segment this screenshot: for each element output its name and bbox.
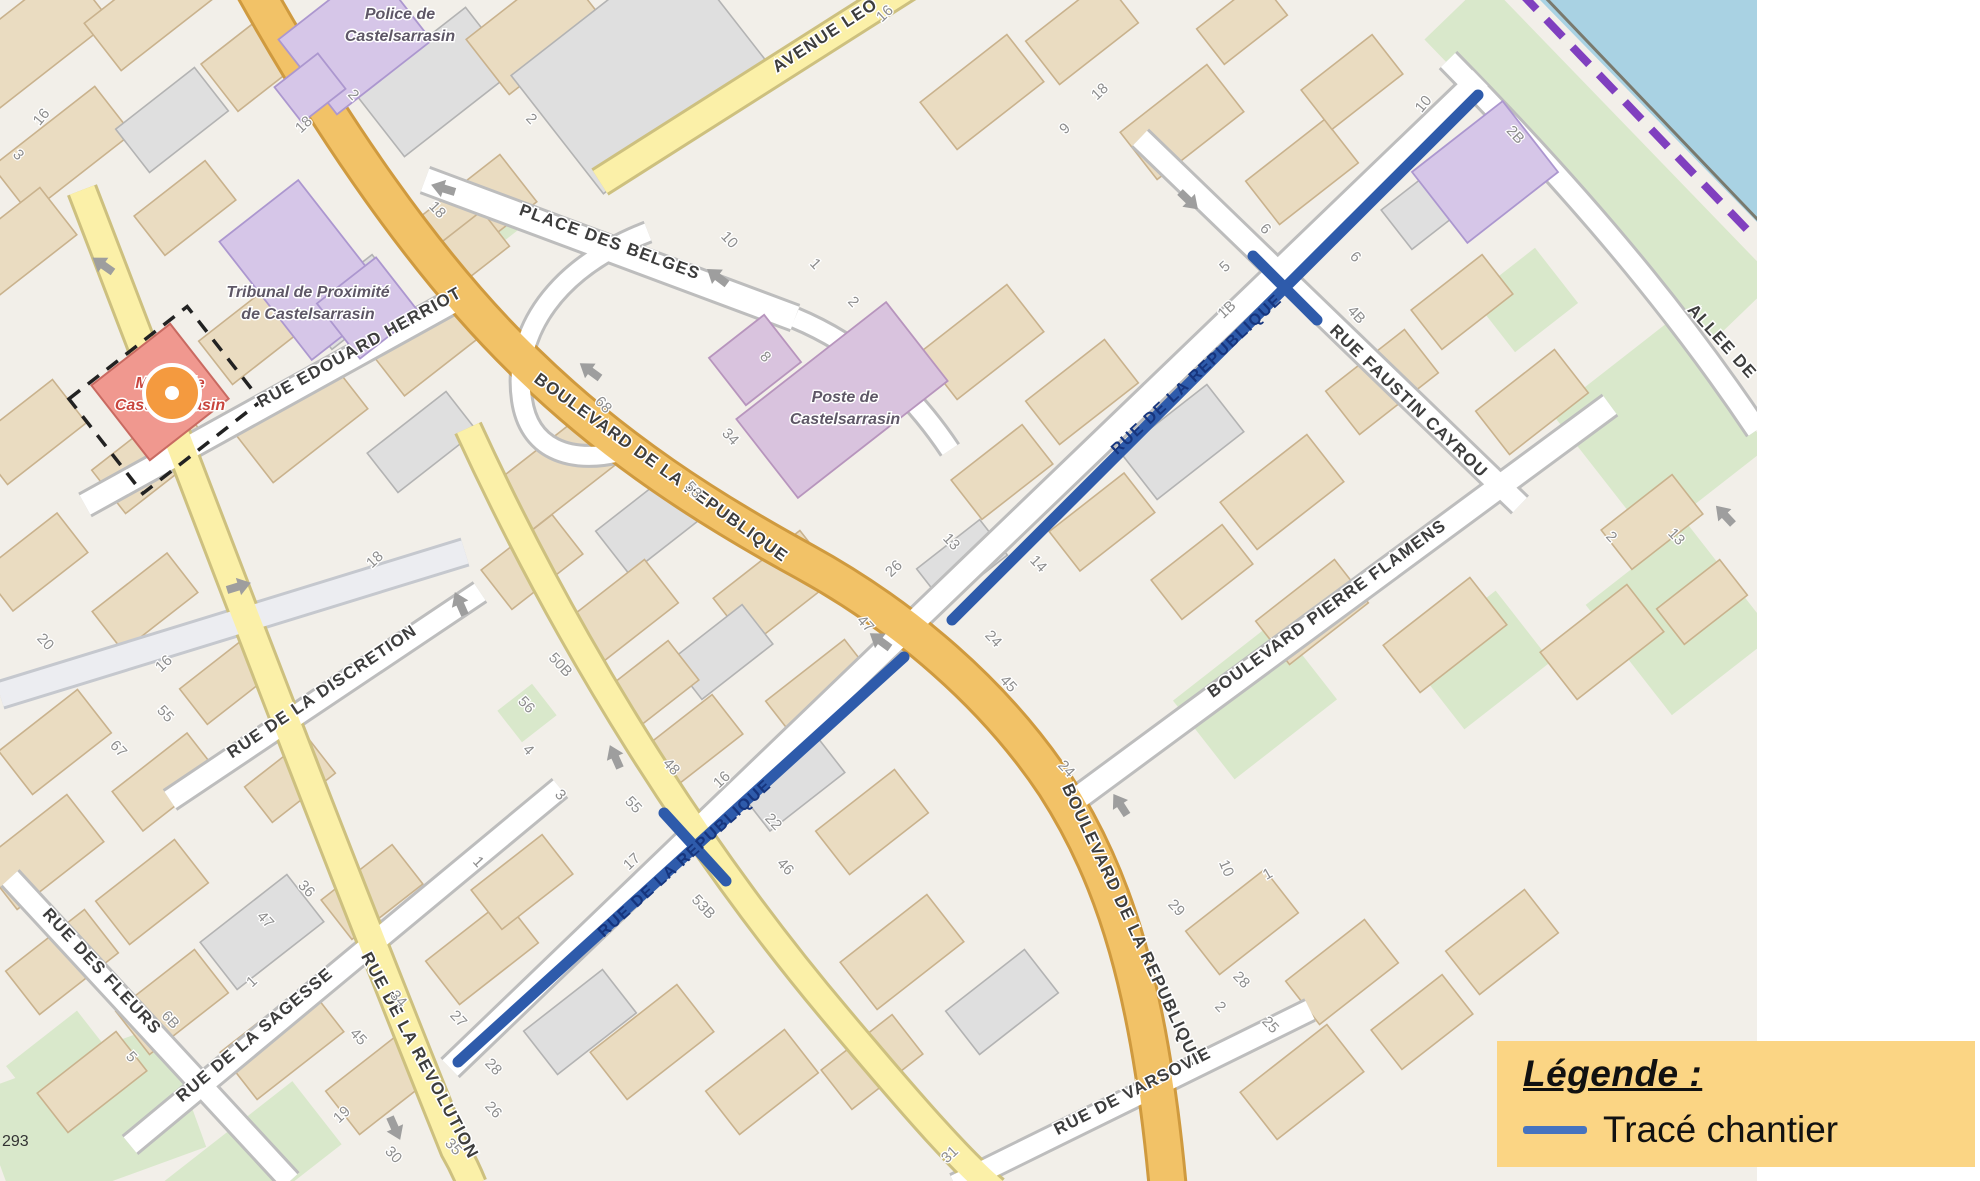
mairie-marker-dot [165,386,179,400]
legend-item-trace-chantier: Tracé chantier [1523,1109,1965,1151]
scale-fragment: 293 [2,1133,29,1150]
legend-title: Légende : [1523,1053,1965,1095]
page-margin [1757,0,1980,1181]
legend-item-label: Tracé chantier [1603,1109,1838,1151]
legend-box: Légende : Tracé chantier [1497,1041,1975,1167]
map-canvas: PLACE DES BELGESRUE EDOUARD HERRIOTAVENU… [0,0,1980,1181]
trace-chantier-swatch-icon [1523,1126,1587,1134]
map-plan-screenshot: PLACE DES BELGESRUE EDOUARD HERRIOTAVENU… [0,0,1980,1181]
